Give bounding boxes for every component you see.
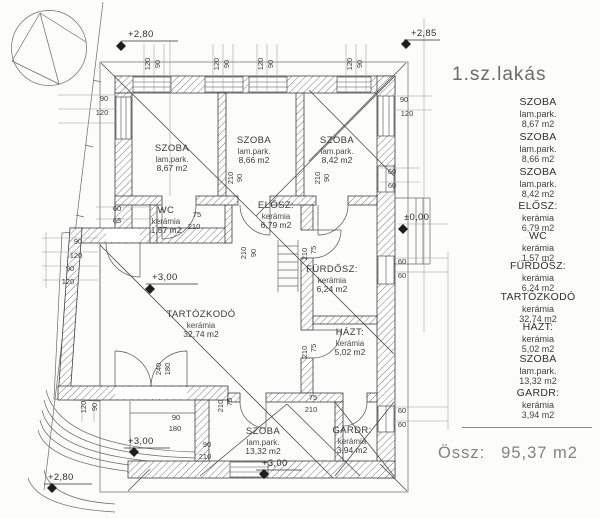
dimension-label: 60 bbox=[398, 271, 406, 280]
room-name: SZOBA bbox=[155, 144, 189, 155]
dimension-label: 90 bbox=[100, 94, 108, 103]
dimension-label: 75 bbox=[225, 398, 234, 406]
room-area: 8,42 m2 bbox=[320, 156, 354, 166]
legend-room-name: FÜRDŐSZ: bbox=[478, 261, 598, 273]
dimension-label: 210 bbox=[300, 248, 309, 261]
page-title: 1.sz.lakás bbox=[452, 64, 546, 86]
dimension-label: 90 bbox=[66, 264, 74, 273]
legend-room-floor: kerámia bbox=[478, 243, 598, 253]
total-label: Össz: bbox=[438, 444, 485, 463]
room-name: SZOBA bbox=[237, 136, 271, 147]
level-label: +3,00 bbox=[128, 436, 154, 447]
dimension-label: 90 bbox=[74, 237, 82, 246]
legend-room-name: SZOBA bbox=[478, 97, 598, 109]
room-area: 32,74 m2 bbox=[166, 330, 235, 340]
room-name: FÜRDŐSZ: bbox=[306, 265, 358, 276]
legend-room-name: SZOBA bbox=[478, 354, 598, 366]
level-label: +3,00 bbox=[152, 272, 178, 283]
room-area: 6,24 m2 bbox=[306, 285, 358, 295]
legend-item-szoba2: SZOBA lam.park. 8,66 m2 bbox=[478, 132, 598, 164]
room-name: HÁZT: bbox=[335, 328, 366, 339]
north-arrow-icon bbox=[12, 11, 87, 86]
room-label-wc: WC kerámia 1,57 m2 bbox=[151, 206, 182, 236]
legend-room-floor: lam.park. bbox=[478, 366, 598, 376]
dimension-label: 60 bbox=[398, 257, 406, 266]
legend-room-floor: kerámia bbox=[478, 213, 598, 223]
legend-room-area: 3,94 m2 bbox=[478, 410, 598, 420]
room-area: 1,57 m2 bbox=[151, 226, 182, 236]
room-name: ELŐSZ: bbox=[258, 201, 294, 212]
legend-divider bbox=[462, 427, 592, 428]
dimension-label: 90 bbox=[172, 413, 180, 422]
dimension-label: 120 bbox=[256, 58, 265, 71]
dimension-label: 120 bbox=[345, 58, 354, 71]
legend-room-area: 8,67 m2 bbox=[478, 119, 598, 129]
dimension-label: 180 bbox=[169, 424, 182, 433]
dimension-label: 210 bbox=[305, 405, 318, 414]
legend-room-floor: kerámia bbox=[478, 334, 598, 344]
dimension-label: 60 bbox=[388, 181, 396, 190]
legend-room-area: 8,42 m2 bbox=[478, 189, 598, 199]
dimension-label: 120 bbox=[401, 109, 414, 118]
level-marker-top-left: +2,80 bbox=[116, 29, 178, 51]
dimension-label: 210 bbox=[313, 172, 322, 185]
total-area: Össz: 95,37 m2 bbox=[438, 444, 578, 463]
dimension-label: 120 bbox=[70, 251, 83, 260]
room-name: GARDR: bbox=[332, 426, 371, 437]
room-name: WC bbox=[151, 206, 182, 217]
legend-item-gardr: GARDR: kerámia 3,94 m2 bbox=[478, 388, 598, 420]
dimension-label: 90 bbox=[355, 60, 364, 68]
room-label-szoba4: SZOBA lam.park. 13,32 m2 bbox=[245, 427, 280, 457]
dimension-label: 60 bbox=[388, 167, 396, 176]
room-area: 6,79 m2 bbox=[258, 221, 294, 231]
dimension-label: 210 bbox=[216, 400, 225, 413]
dimension-label: 75 bbox=[309, 344, 318, 352]
level-label: +2,80 bbox=[128, 29, 154, 40]
dimension-label: 90 bbox=[249, 249, 258, 257]
legend-room-floor: kerámia bbox=[478, 304, 598, 314]
level-marker-terrace: +3,00 bbox=[124, 436, 170, 457]
room-area: 3,94 m2 bbox=[332, 446, 371, 456]
room-area: 5,02 m2 bbox=[335, 348, 366, 358]
legend-room-name: HÁZT: bbox=[478, 322, 598, 334]
room-area: 13,32 m2 bbox=[245, 447, 280, 457]
dimension-label: 210 bbox=[226, 172, 235, 185]
room-label-hazt: HÁZT: kerámia 5,02 m2 bbox=[335, 328, 366, 358]
dimension-label: 90 bbox=[400, 95, 408, 104]
dimension-label: 60 bbox=[398, 420, 406, 429]
legend-room-floor: lam.park. bbox=[478, 109, 598, 119]
legend-room-name: ELŐSZ: bbox=[478, 201, 598, 213]
room-label-furdosz: FÜRDŐSZ: kerámia 6,24 m2 bbox=[306, 265, 358, 295]
dimension-label: 90 bbox=[203, 440, 211, 449]
room-name: SZOBA bbox=[245, 427, 280, 438]
level-marker-living: +3,00 bbox=[145, 272, 198, 294]
dimension-label: 120 bbox=[143, 58, 152, 71]
room-label-szoba3: SZOBA lam.park. 8,42 m2 bbox=[320, 136, 354, 166]
dimension-label: 120 bbox=[212, 58, 221, 71]
dimension-label: 90 bbox=[222, 60, 231, 68]
floorplan-page: 120 90 120 90 120 90 120 90 210 90 210 9… bbox=[0, 0, 600, 518]
level-label: +2,85 bbox=[411, 28, 437, 39]
room-area: 8,67 m2 bbox=[155, 164, 189, 174]
room-name: TARTÓZKODÓ bbox=[166, 310, 235, 321]
dimension-label: 60 bbox=[398, 406, 406, 415]
legend-item-tartozkodo: TARTÓZKODÓ kerámia 32,74 m2 bbox=[478, 292, 598, 324]
room-label-tartozkodo: TARTÓZKODÓ kerámia 32,74 m2 bbox=[166, 310, 235, 340]
legend-item-wc: WC kerámia 1,57 m2 bbox=[478, 231, 598, 263]
dimension-label: 90 bbox=[266, 60, 275, 68]
legend-item-elosz: ELŐSZ: kerámia 6,79 m2 bbox=[478, 201, 598, 233]
legend-room-floor: kerámia bbox=[478, 273, 598, 283]
dimension-label: 210 bbox=[239, 247, 248, 260]
legend-item-szoba3: SZOBA lam.park. 8,42 m2 bbox=[478, 167, 598, 199]
legend-room-floor: kerámia bbox=[478, 400, 598, 410]
legend-item-szoba1: SZOBA lam.park. 8,67 m2 bbox=[478, 97, 598, 129]
room-name: SZOBA bbox=[320, 136, 354, 147]
legend-item-furdosz: FÜRDŐSZ: kerámia 6,24 m2 bbox=[478, 261, 598, 293]
level-label: +3,00 bbox=[262, 458, 288, 469]
level-label: +2,80 bbox=[48, 472, 74, 483]
dimension-label: 65 bbox=[113, 216, 121, 225]
dimension-label: 75 bbox=[193, 210, 201, 219]
legend-item-hazt: HÁZT: kerámia 5,02 m2 bbox=[478, 322, 598, 354]
dimension-label: 210 bbox=[300, 346, 309, 359]
legend-room-name: GARDR: bbox=[478, 388, 598, 400]
dimension-label: 210 bbox=[199, 452, 212, 461]
legend-room-name: SZOBA bbox=[478, 132, 598, 144]
dimension-label: 90 bbox=[153, 60, 162, 68]
total-value: 95,37 m2 bbox=[501, 444, 578, 463]
legend-room-name: SZOBA bbox=[478, 167, 598, 179]
level-marker-entrance: ±0,00 bbox=[398, 212, 429, 234]
dimension-label: 120 bbox=[96, 108, 109, 117]
legend-room-name: TARTÓZKODÓ bbox=[478, 292, 598, 304]
dimension-label: 120 bbox=[62, 277, 75, 286]
room-label-elosz: ELŐSZ: kerámia 6,79 m2 bbox=[258, 201, 294, 231]
legend-room-floor: lam.park. bbox=[478, 144, 598, 154]
legend-item-szoba4: SZOBA lam.park. 13,32 m2 bbox=[478, 354, 598, 386]
level-label: ±0,00 bbox=[404, 212, 429, 223]
dimension-label: 240 bbox=[154, 363, 163, 376]
dimension-label: 60 bbox=[113, 204, 121, 213]
room-area: 8,66 m2 bbox=[237, 156, 271, 166]
legend-room-area: 8,66 m2 bbox=[478, 154, 598, 164]
room-label-gardr: GARDR: kerámia 3,94 m2 bbox=[332, 426, 371, 456]
level-marker-top-right: +2,85 bbox=[401, 28, 440, 49]
dimension-label: 75 bbox=[309, 246, 318, 254]
legend-room-floor: lam.park. bbox=[478, 179, 598, 189]
dimension-label: 90 bbox=[235, 174, 244, 182]
dimension-label: 75 bbox=[309, 393, 317, 402]
room-label-szoba1: SZOBA lam.park. 8,67 m2 bbox=[155, 144, 189, 174]
dimension-label: 90 bbox=[322, 174, 331, 182]
legend-room-area: 13,32 m2 bbox=[478, 376, 598, 386]
legend-room-name: WC bbox=[478, 231, 598, 243]
room-label-szoba2: SZOBA lam.park. 8,66 m2 bbox=[237, 136, 271, 166]
dimension-label: 120 bbox=[79, 401, 88, 414]
level-marker-garden: +2,80 bbox=[44, 472, 92, 493]
dimension-label: 180 bbox=[163, 363, 172, 376]
dimension-label: 210 bbox=[188, 222, 201, 231]
dimension-label: 90 bbox=[90, 403, 99, 411]
